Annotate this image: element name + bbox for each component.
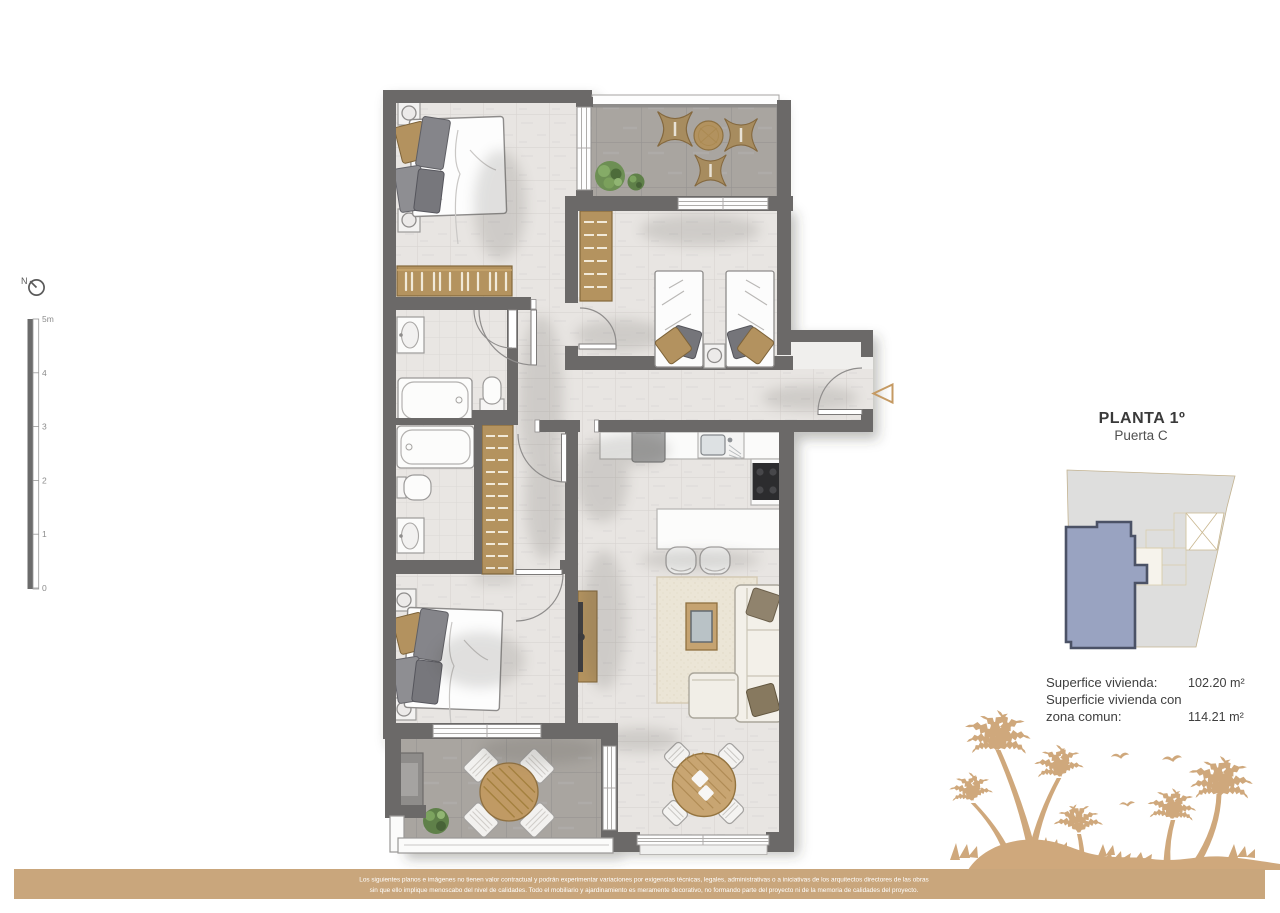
svg-text:102.20 m²: 102.20 m² — [1188, 676, 1245, 690]
svg-text:sin que ello implique menoscab: sin que ello implique menoscabo del nive… — [370, 887, 919, 894]
svg-text:PLANTA 1º: PLANTA 1º — [1099, 410, 1186, 427]
svg-text:4: 4 — [42, 368, 47, 378]
svg-text:0: 0 — [42, 583, 47, 593]
svg-text:N: N — [21, 276, 28, 286]
svg-text:5m: 5m — [42, 314, 54, 324]
svg-text:Superfice vivienda:: Superfice vivienda: — [1046, 675, 1157, 690]
svg-text:3: 3 — [42, 422, 47, 432]
svg-text:Puerta C: Puerta C — [1114, 428, 1168, 443]
svg-text:Los siguientes planos e imágen: Los siguientes planos e imágenes no tien… — [359, 877, 928, 884]
svg-text:Superficie vivienda con: Superficie vivienda con — [1046, 692, 1182, 707]
svg-text:114.21 m²: 114.21 m² — [1188, 710, 1244, 724]
svg-text:1: 1 — [42, 529, 47, 539]
svg-text:zona comun:: zona comun: — [1046, 709, 1122, 724]
svg-text:2: 2 — [42, 475, 47, 485]
